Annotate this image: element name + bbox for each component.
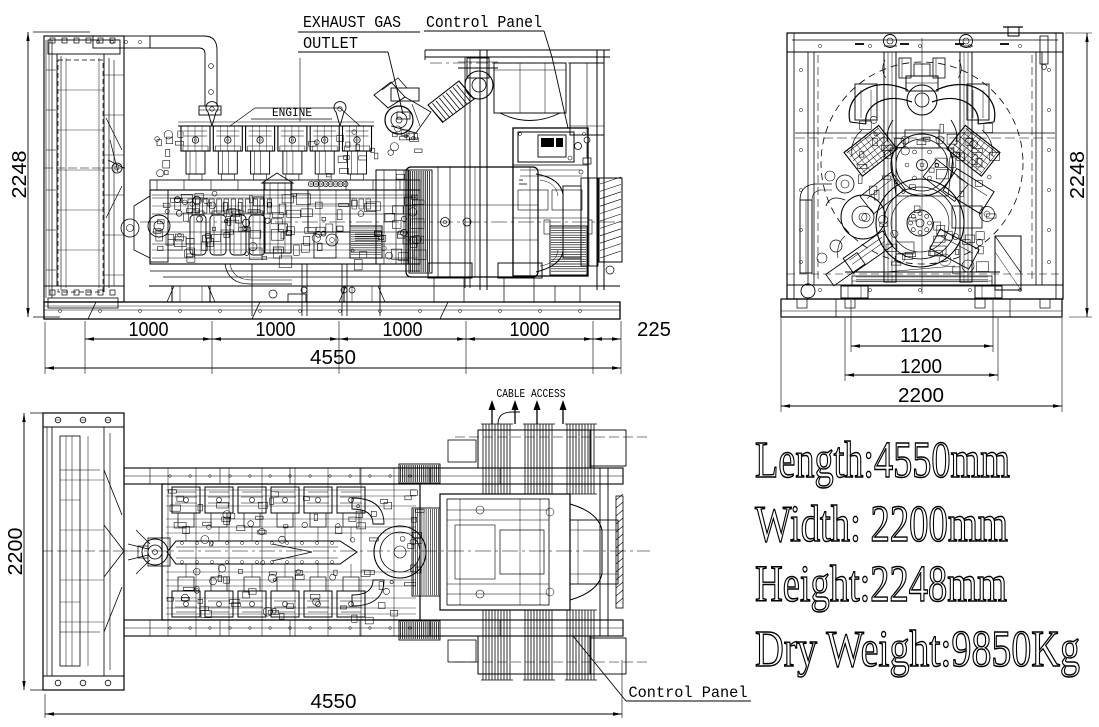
svg-text:4550: 4550 <box>311 691 357 713</box>
svg-text:2200: 2200 <box>5 528 27 576</box>
svg-text:1000: 1000 <box>383 319 423 341</box>
svg-text:2200: 2200 <box>898 385 944 407</box>
svg-text:225: 225 <box>637 319 671 341</box>
svg-text:Width: 2200mm: Width: 2200mm <box>755 496 1008 553</box>
svg-text:1000: 1000 <box>256 319 296 341</box>
svg-text:1200: 1200 <box>900 356 942 378</box>
svg-text:CABLE ACCESS: CABLE ACCESS <box>497 388 566 401</box>
svg-text:1120: 1120 <box>900 325 942 347</box>
svg-text:EXHAUST GAS: EXHAUST GAS <box>303 14 401 33</box>
svg-text:2248: 2248 <box>9 151 31 199</box>
svg-text:Dry Weight:9850Kg: Dry Weight:9850Kg <box>755 621 1080 678</box>
svg-text:Control Panel: Control Panel <box>629 684 748 702</box>
svg-text:2248: 2248 <box>1067 151 1089 199</box>
svg-text:OUTLET: OUTLET <box>303 35 358 54</box>
svg-text:Height:2248mm: Height:2248mm <box>755 556 1007 613</box>
svg-text:1000: 1000 <box>129 319 169 341</box>
svg-text:4550: 4550 <box>310 347 356 369</box>
svg-text:Length:4550mm: Length:4550mm <box>755 432 1010 489</box>
svg-text:1000: 1000 <box>510 319 550 341</box>
svg-text:Control Panel: Control Panel <box>426 14 542 33</box>
